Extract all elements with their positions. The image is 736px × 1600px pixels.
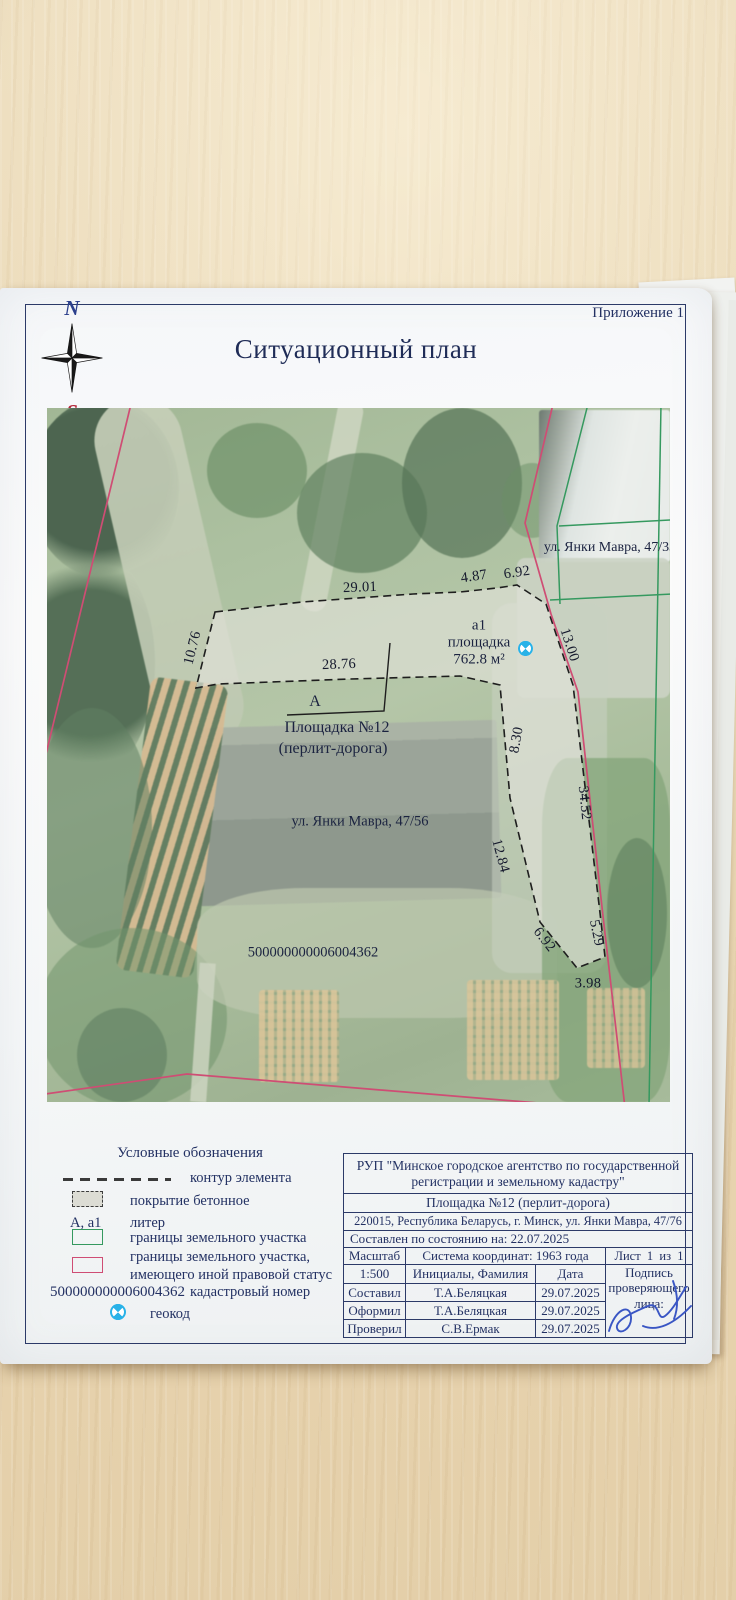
callout-letter: А: [309, 693, 321, 711]
legend-label-pink-boundary: границы земельного участка, имеющего ино…: [130, 1248, 332, 1284]
tb-name-header: Инициалы, Фамилия: [406, 1265, 536, 1284]
legend-geocode-icon: [110, 1304, 126, 1320]
tb-scale-value: 1:500: [344, 1265, 406, 1284]
dim-3-98: 3.98: [575, 976, 602, 993]
tb-name-2: Т.А.Беляцкая: [406, 1302, 536, 1320]
geocode-marker-icon: [518, 641, 533, 656]
site-letter-a1: a1: [472, 618, 486, 635]
dim-34-52: 34.52: [574, 785, 594, 821]
legend-swatch-contour: [63, 1178, 171, 1181]
tb-object: Площадка №12 (перлит-дорога): [344, 1194, 693, 1213]
legend-title: Условные обозначения: [90, 1145, 290, 1162]
tb-date-1: 29.07.2025: [536, 1284, 606, 1302]
tb-date-header: Дата: [536, 1265, 606, 1284]
street-label-47-56: ул. Янки Мавра, 47/56: [291, 814, 428, 831]
parcel-outline-dashed: [196, 585, 605, 968]
boundary-green-building-base: [559, 520, 670, 526]
legend-label-contour: контур элемента: [190, 1170, 292, 1187]
tb-scale-label: Масштаб: [344, 1248, 406, 1265]
tb-date-2: 29.07.2025: [536, 1302, 606, 1320]
dim-4-87: 4.87: [460, 567, 489, 588]
legend-cadastral-value: 500000000006004362: [50, 1284, 185, 1301]
site-name: площадка: [448, 635, 511, 652]
tb-role-1: Составил: [344, 1284, 406, 1302]
dim-29-01: 29.01: [343, 579, 378, 597]
tb-name-3: С.В.Ермак: [406, 1320, 536, 1338]
cadastral-number-map: 500000000006004362: [248, 945, 379, 962]
dim-6-92-top: 6.92: [503, 563, 532, 584]
situational-plan-map: 29.01 4.87 6.92 10.76 28.76 13.00 8.30 1…: [47, 408, 670, 1102]
tb-agency: РУП "Минское городское агентство по госу…: [344, 1154, 693, 1194]
tb-sheet: Лист 1 из 1: [606, 1248, 693, 1265]
tb-role-2: Оформил: [344, 1302, 406, 1320]
boundary-green-horizontal: [550, 594, 670, 600]
legend-swatch-pink-boundary: [72, 1257, 103, 1273]
title-block-table: РУП "Минское городское агентство по госу…: [343, 1153, 693, 1338]
legend-label-geocode: геокод: [150, 1306, 190, 1323]
legend-label-concrete: покрытие бетонное: [130, 1193, 250, 1210]
legend-label-green-boundary: границы земельного участка: [130, 1230, 306, 1247]
tb-name-1: Т.А.Беляцкая: [406, 1284, 536, 1302]
compass-star-icon: [39, 319, 105, 397]
tb-role-3: Проверил: [344, 1320, 406, 1338]
callout-detail: (перлит-дорога): [279, 740, 388, 758]
street-label-47-33: ул. Янки Мавра, 47/33: [544, 540, 670, 556]
document-page: Приложение 1 Ситуационный план N S: [0, 288, 712, 1364]
compass-rose: N S: [38, 298, 106, 423]
boundary-green-right: [649, 408, 661, 1102]
legend-swatch-concrete: [72, 1191, 103, 1207]
boundary-pink-topleft: [47, 408, 131, 758]
page-title: Ситуационный план: [0, 334, 712, 365]
boundary-green-building: [557, 408, 588, 604]
tb-address: 220015, Республика Беларусь, г. Минск, у…: [344, 1213, 693, 1231]
legend-swatch-green-boundary: [72, 1229, 103, 1245]
site-area: 762.8 м²: [453, 652, 505, 669]
tb-coord-system: Система координат: 1963 года: [406, 1248, 606, 1265]
signature-scribble: [606, 1279, 693, 1338]
title-block: РУП "Минское городское агентство по госу…: [343, 1153, 693, 1338]
callout-name: Площадка №12: [285, 719, 390, 737]
dim-28-76: 28.76: [322, 656, 357, 674]
tb-signature-cell: Подпись проверяющего лица:: [606, 1265, 693, 1338]
photo-background-wood: Приложение 1 Ситуационный план N S: [0, 0, 736, 1600]
legend-label-cadastral: кадастровый номер: [190, 1284, 310, 1301]
tb-date-3: 29.07.2025: [536, 1320, 606, 1338]
tb-compiled-date: Составлен по состоянию на: 22.07.2025: [344, 1231, 693, 1248]
compass-north-label: N: [38, 298, 106, 319]
appendix-label: Приложение 1: [592, 305, 684, 322]
boundary-pink-bottom: [47, 1074, 623, 1102]
